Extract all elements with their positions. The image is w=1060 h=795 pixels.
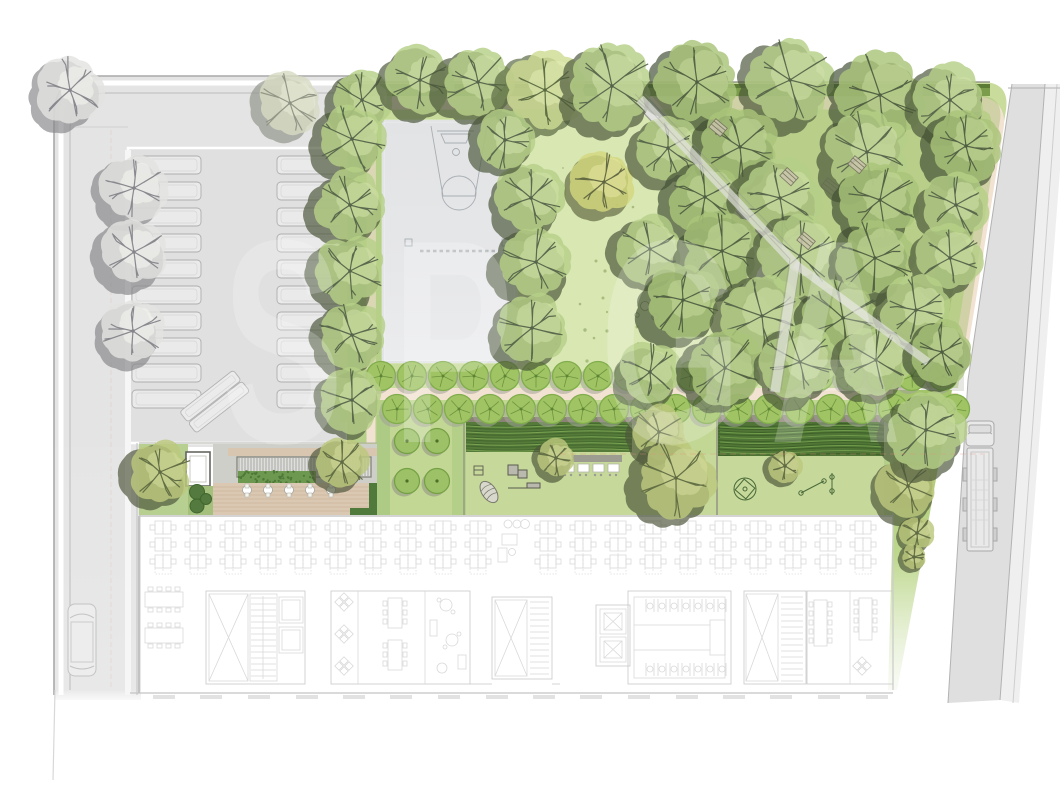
svg-text:S: S [222,181,344,504]
svg-text:G: G [600,181,742,504]
svg-text:P: P [392,181,514,504]
svg-text:A: A [770,181,902,504]
